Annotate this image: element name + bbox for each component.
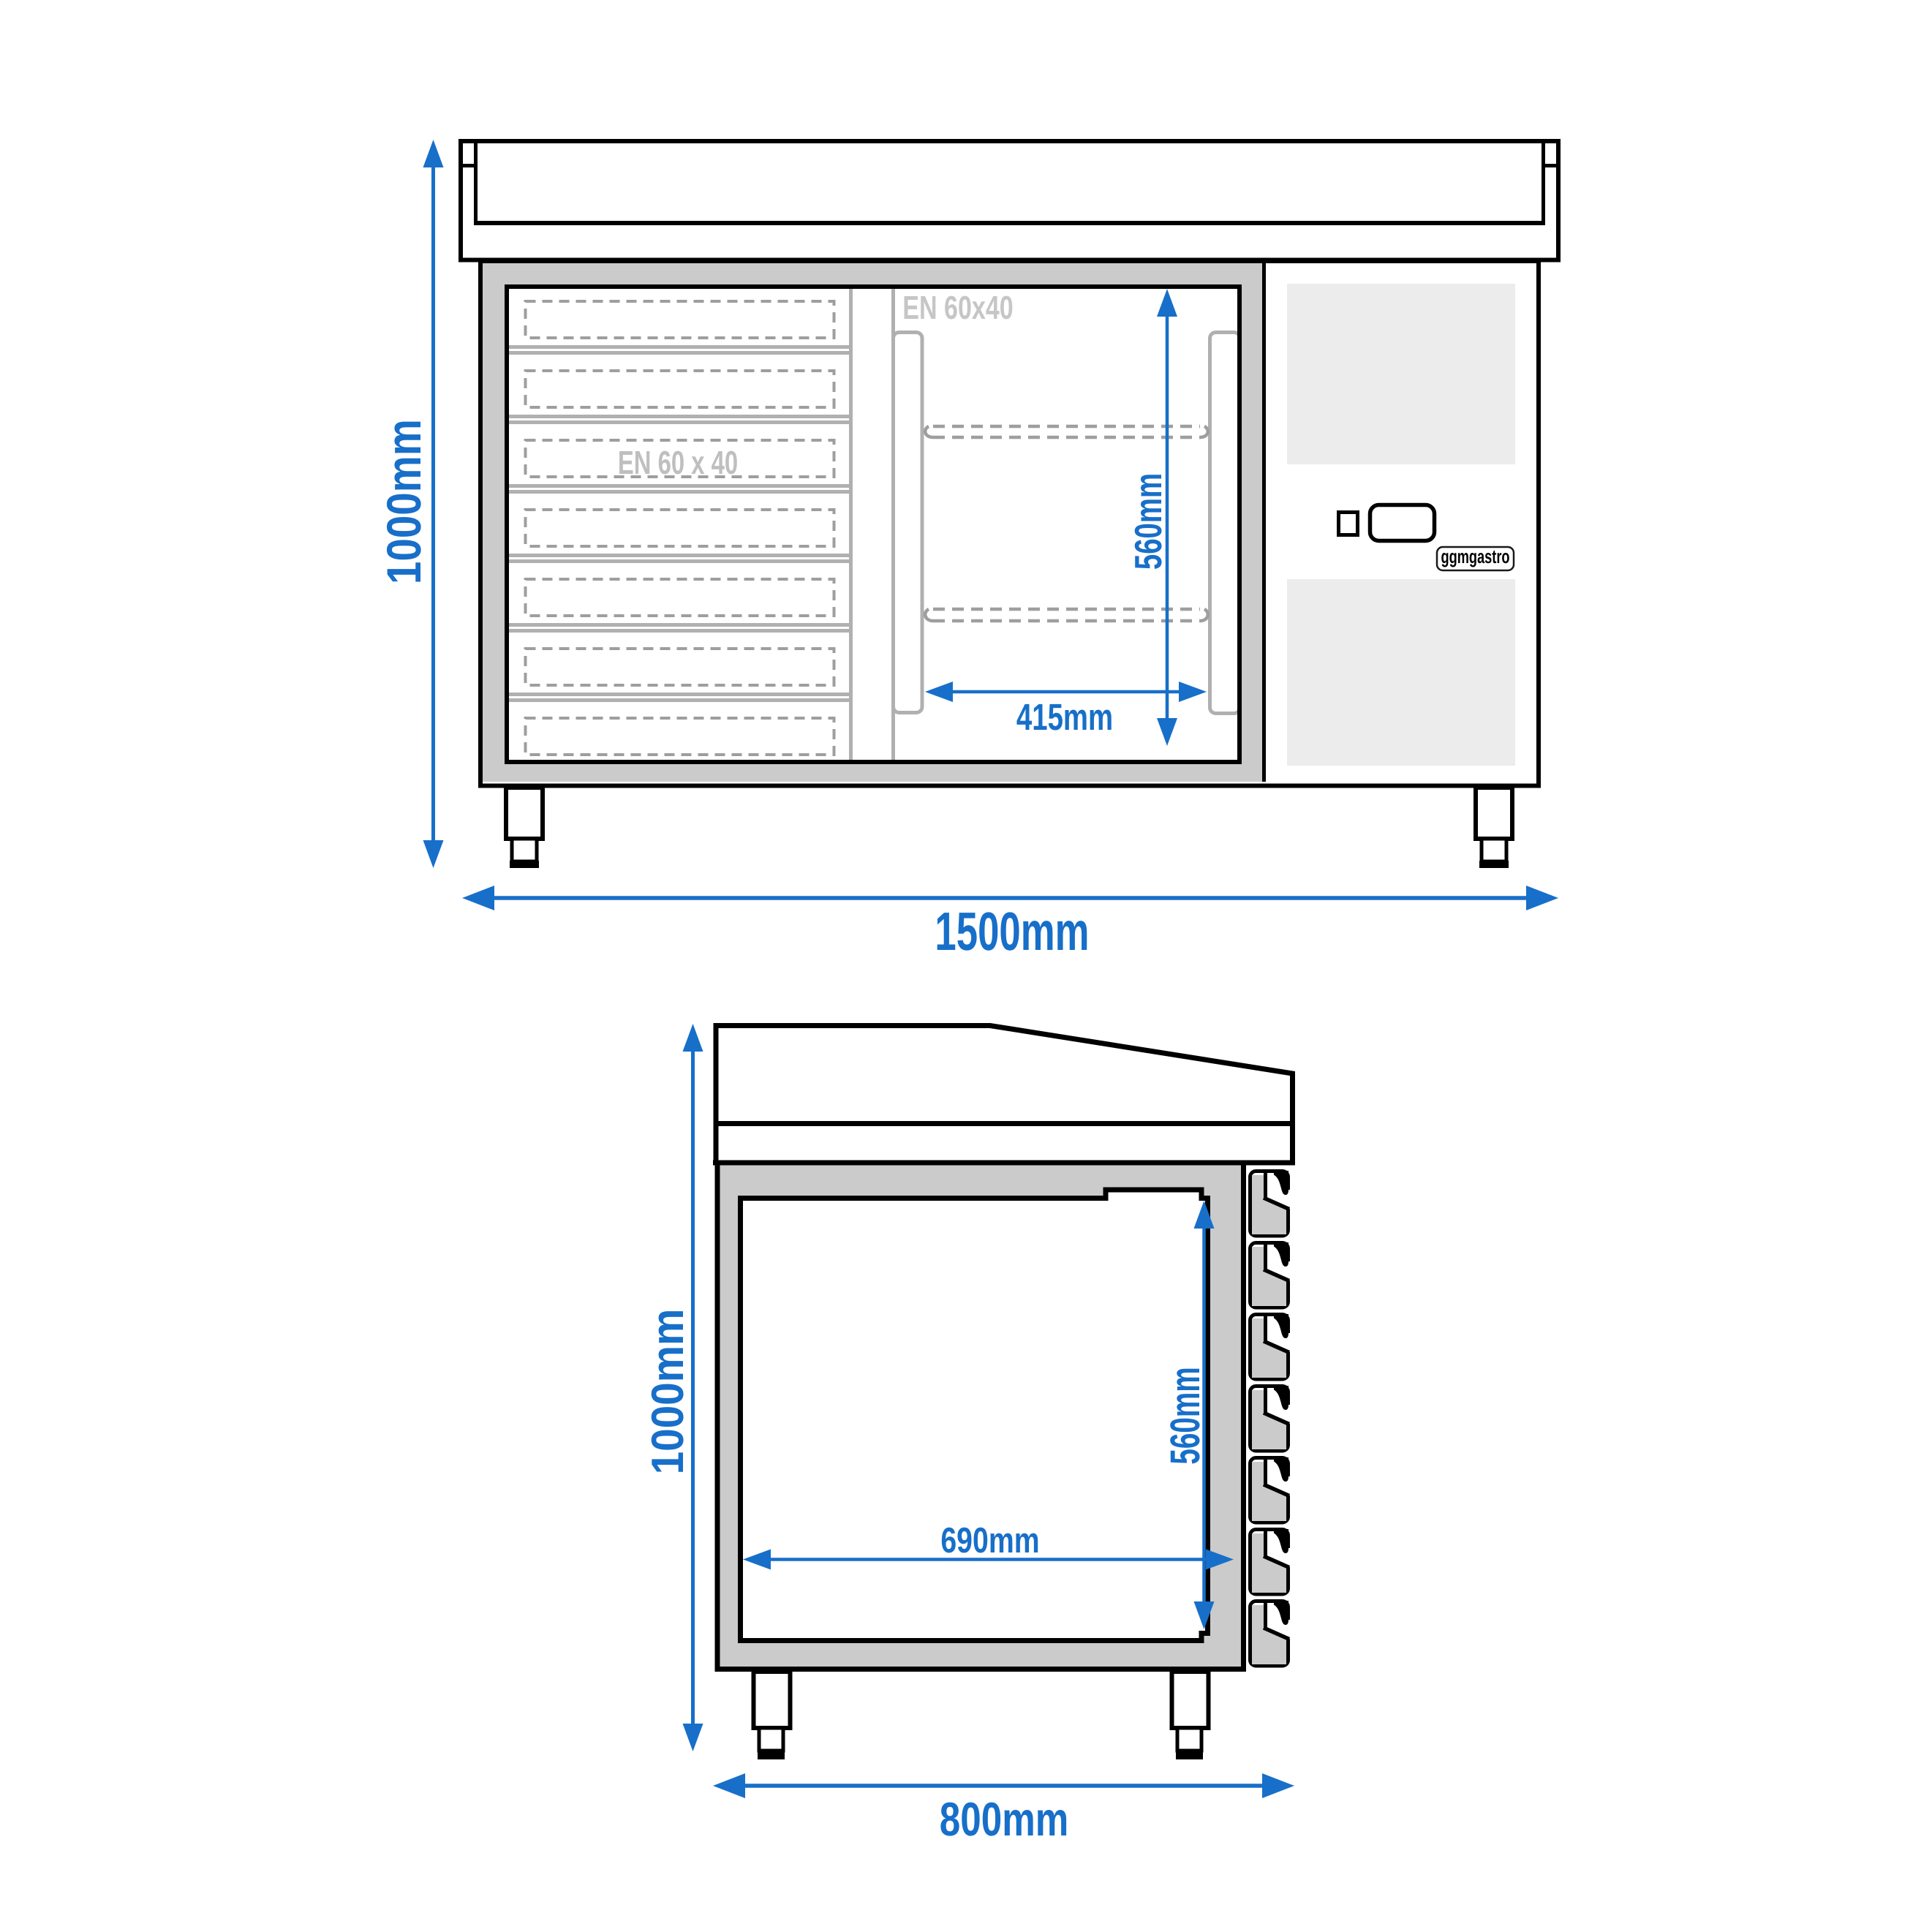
svg-text:EN 60 x 40: EN 60 x 40 — [618, 444, 738, 481]
svg-text:EN 60x40: EN 60x40 — [902, 289, 1014, 326]
svg-text:1000mm: 1000mm — [643, 1309, 693, 1475]
svg-text:415mm: 415mm — [1016, 696, 1113, 738]
svg-text:560mm: 560mm — [1162, 1367, 1209, 1464]
svg-text:690mm: 690mm — [940, 1521, 1039, 1561]
svg-text:1000mm: 1000mm — [377, 419, 431, 584]
svg-text:800mm: 800mm — [940, 1792, 1069, 1846]
svg-text:ggmgastro: ggmgastro — [1441, 546, 1509, 567]
svg-text:1500mm: 1500mm — [935, 901, 1089, 962]
svg-text:560mm: 560mm — [1128, 473, 1170, 570]
